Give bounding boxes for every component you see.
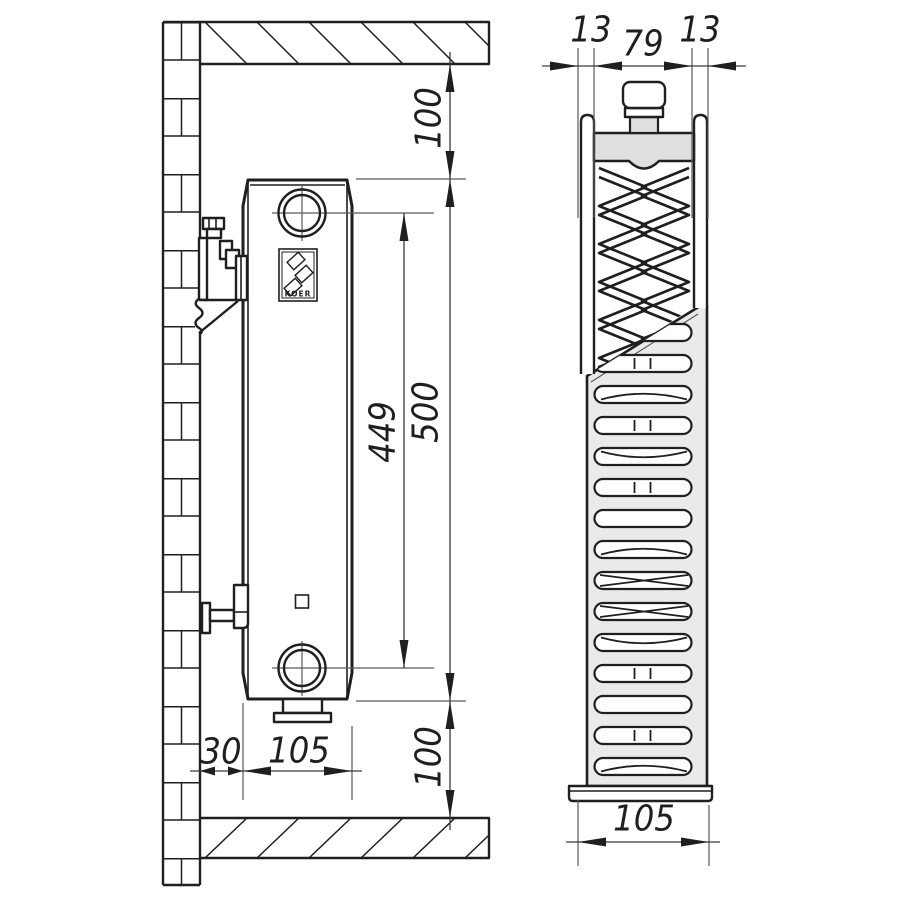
side-grille [587,306,707,786]
dim-radiator-height: 500 [406,381,447,443]
wall-section [163,22,200,885]
radiator-front-view [569,82,712,801]
brand-logo-text: KOER [285,290,312,299]
radiator-installation-drawing: 100 500 449 100 30 105 13 79 13 105 KOER [0,0,900,900]
dim-ceiling-clearance: 100 [409,87,450,149]
dim-left-panel: 13 [570,10,611,51]
dim-center-width: 79 [622,24,663,65]
dim-floor-clearance: 100 [409,726,450,788]
floor-section [200,818,489,858]
air-vent-valve [623,82,665,133]
dim-depth-front: 105 [613,799,675,840]
bottom-wall-bracket [202,585,248,633]
radiator-foot [274,699,331,722]
dim-right-panel: 13 [679,10,720,51]
drawing-linework [0,0,900,900]
dim-wall-gap: 30 [200,732,241,773]
ceiling-section [163,22,489,64]
dim-depth-side: 105 [268,731,330,772]
top-wall-bracket [195,218,247,334]
top-header [594,133,694,169]
dim-connection-spacing: 449 [363,401,404,463]
